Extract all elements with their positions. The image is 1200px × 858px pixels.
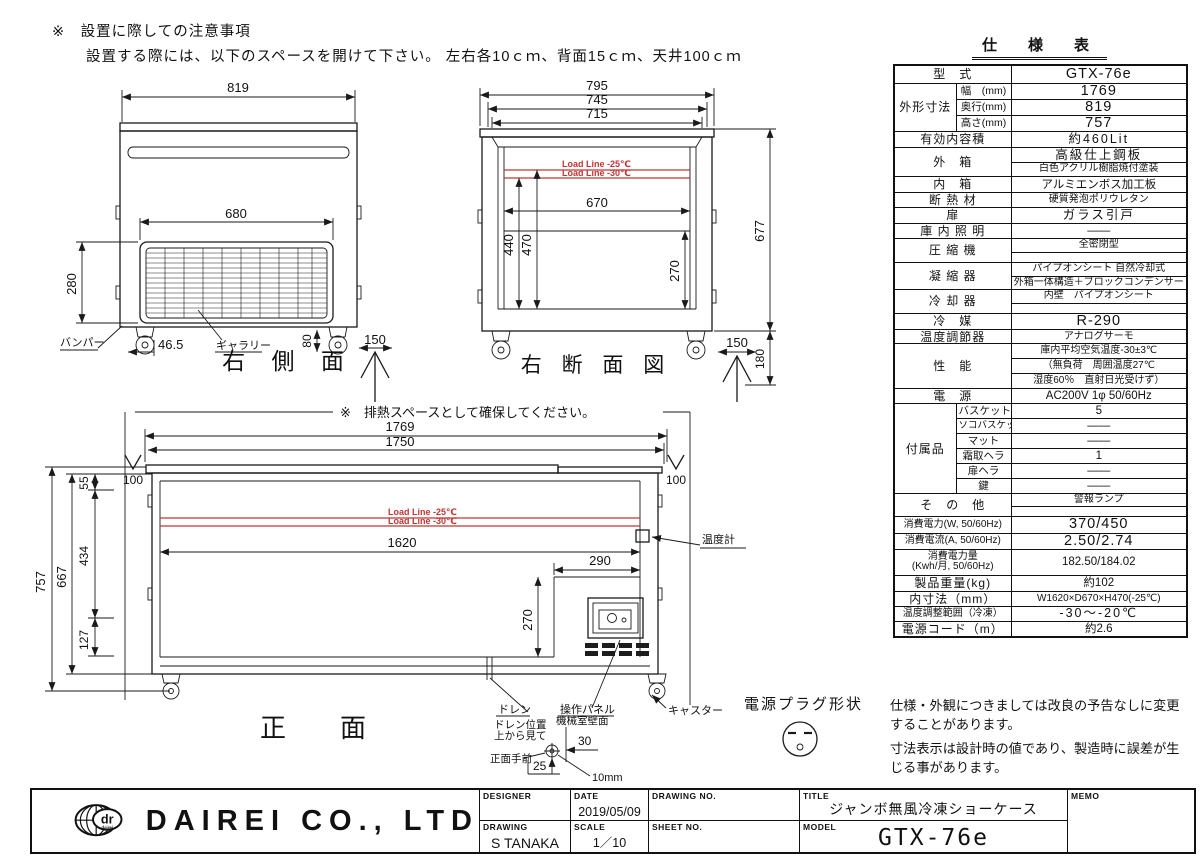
dim-side-80: 80 — [300, 334, 314, 348]
grille-hatch — [146, 248, 327, 318]
front-view-title: 正 面 — [260, 713, 380, 743]
spec-cell: 外形寸法 — [894, 83, 956, 132]
spec-cell: そ の 他 — [894, 494, 1011, 517]
spec-cell: W1620×D670×H470(-25℃) — [1011, 591, 1187, 606]
spec-cell: 内 箱 — [894, 177, 1011, 193]
install-note-title: ※ 設置に際しての注意事項 — [52, 20, 251, 41]
spec-cell: -30～-20℃ — [1011, 606, 1187, 621]
spec-cell: 幅 (mm) — [956, 83, 1011, 99]
spec-row: そ の 他警報ランプ — [894, 494, 1187, 507]
spec-row: 消費電力(W, 50/60Hz)370/450 — [894, 517, 1187, 533]
spec-cell: —— — [1011, 419, 1187, 434]
model-value: GTX-76e — [800, 825, 1067, 851]
dim-front-127: 127 — [77, 630, 91, 650]
label-caster: キャスター — [668, 704, 723, 717]
spec-row: 内 箱アルミエンボス加工板 — [894, 177, 1187, 193]
dim-sec-715: 715 — [586, 106, 608, 121]
spec-row: 冷 却 器内壁 パイプオンシート — [894, 290, 1187, 304]
spec-row: 冷 媒R-290 — [894, 314, 1187, 330]
drawing-no-label: DRAWING NO. — [652, 791, 716, 801]
drain-detail-10mm: 10mm — [592, 772, 623, 784]
dim-front-1769: 1769 — [386, 419, 415, 434]
spec-cell: 冷 却 器 — [894, 290, 1011, 314]
load-line-30-label: Load Line -30℃ — [562, 168, 631, 178]
spec-cell: 性 能 — [894, 344, 1011, 389]
spec-cell: 警報ランプ — [1011, 494, 1187, 507]
spec-cell: 高級仕上鋼板 — [1011, 148, 1187, 163]
title-block: dr dairei DAIREI CO., LTD DESIGNER DRAWI… — [30, 788, 1196, 854]
dim-front-100-right: 100 — [666, 473, 686, 487]
dim-sec-150: 150 — [726, 335, 748, 350]
spec-row: 圧 縮 機全密閉型 — [894, 239, 1187, 253]
spec-row: 庫 内 照 明—— — [894, 224, 1187, 239]
dim-sec-440: 440 — [501, 234, 516, 256]
drawing-sheet: 819 680 280 バンパー 46.5 ギャラリー 80 150 右 側 面 — [0, 0, 1200, 858]
dim-side-280: 280 — [64, 273, 79, 295]
spec-cell: 約102 — [1011, 575, 1187, 591]
dim-sec-670: 670 — [586, 195, 608, 210]
spec-cell: 電 源 — [894, 389, 1011, 404]
spec-cell: R-290 — [1011, 314, 1187, 330]
spec-row: 消費電流(A, 50/60Hz)2.50/2.74 — [894, 533, 1187, 549]
spec-cell: 消費電力(W, 50/60Hz) — [894, 517, 1011, 533]
spec-section: 仕 様 表 型 式GTX-76e外形寸法幅 (mm)1769奥行(mm)819高… — [893, 34, 1186, 638]
spec-row: 性 能庫内平均空気温度-30±3℃ — [894, 344, 1187, 359]
spec-cell: 冷 媒 — [894, 314, 1011, 330]
label-panel: 操作パネル — [560, 702, 615, 716]
spec-cell: 370/450 — [1011, 517, 1187, 533]
spec-cell: 1769 — [1011, 83, 1187, 99]
spec-cell: ガラス引戸 — [1011, 208, 1187, 224]
spec-row: 電源コード（m）約2.6 — [894, 621, 1187, 637]
dim-front-1620: 1620 — [388, 535, 417, 550]
spec-cell: 製品重量(kg) — [894, 575, 1011, 591]
disclaimer-2: 寸法表示は設計時の値であり、製造時に誤差が生じる事があります。 — [890, 740, 1192, 777]
spec-row: 有効内容積約460Lit — [894, 132, 1187, 148]
install-note-body: 設置する際には、以下のスペースを開けて下さい。 左右各10ｃｍ、背面15ｃｍ、天… — [86, 45, 742, 66]
date-cell: DATE 2019/05/09 SCALE 1／10 — [570, 790, 648, 852]
spec-cell: 霜取ヘラ — [956, 449, 1011, 464]
front-load-line-30: Load Line -30℃ — [388, 516, 457, 526]
spec-row: 外 箱高級仕上鋼板 — [894, 148, 1187, 163]
date-label: DATE — [574, 791, 599, 801]
spec-cell: —— — [1011, 479, 1187, 494]
dim-side-680: 680 — [225, 206, 247, 221]
company-name: DAIREI CO., LTD — [146, 805, 479, 838]
spec-cell: 凝 縮 器 — [894, 263, 1011, 290]
spec-cell: 扉 — [894, 208, 1011, 224]
designer-cell: DESIGNER DRAWING S TANAKA — [479, 790, 570, 852]
dim-front-290: 290 — [589, 553, 611, 568]
spec-cell: 温度調整範囲（冷凍） — [894, 606, 1011, 621]
side-view-title: 右 側 面 — [222, 348, 354, 374]
spec-cell: アナログサーモ — [1011, 330, 1187, 344]
spec-cell: 約460Lit — [1011, 132, 1187, 148]
sheet-no-label: SHEET NO. — [652, 822, 702, 832]
spec-cell: 奥行(mm) — [956, 99, 1011, 115]
spec-cell: 湿度60％ 直射日光受けず） — [1011, 374, 1187, 389]
spec-row: 電 源AC200V 1φ 50/60Hz — [894, 389, 1187, 404]
dairei-logo: dr dairei — [74, 795, 136, 847]
spec-row: 付属品バスケット5 — [894, 404, 1187, 419]
spec-table: 型 式GTX-76e外形寸法幅 (mm)1769奥行(mm)819高さ(mm)7… — [893, 64, 1188, 638]
spec-cell: 全密閉型 — [1011, 239, 1187, 253]
spec-row: 製品重量(kg)約102 — [894, 575, 1187, 591]
dim-front-434: 434 — [77, 546, 91, 566]
spec-row: 断 熱 材硬質発泡ポリウレタン — [894, 193, 1187, 208]
spec-row: 消費電力量(Kwh/月, 50/60Hz)182.50/184.02 — [894, 549, 1187, 575]
designer-label: DESIGNER — [483, 791, 531, 801]
spec-cell: （無負荷 周囲温度27℃ — [1011, 359, 1187, 374]
label-drain: ドレン — [498, 704, 531, 716]
dim-sec-795: 795 — [586, 78, 608, 93]
dim-front-270: 270 — [520, 609, 535, 631]
label-bumper: バンパー — [60, 336, 105, 349]
spec-cell: 内壁 パイプオンシート — [1011, 290, 1187, 304]
front-view-linework — [45, 429, 746, 716]
dim-front-55: 55 — [77, 476, 91, 490]
spec-cell: パイプオンシート 自然冷却式 — [1011, 263, 1187, 277]
label-thermometer: 温度計 — [702, 532, 735, 546]
spec-cell: —— — [1011, 434, 1187, 449]
spec-cell: 外箱一体構造＋ブロックコンデンサー — [1011, 277, 1187, 290]
dim-sec-270: 270 — [667, 260, 682, 282]
spec-cell — [1011, 253, 1187, 263]
spec-cell: 819 — [1011, 99, 1187, 115]
dim-sec-470: 470 — [519, 234, 534, 256]
spec-cell: 1 — [1011, 449, 1187, 464]
spec-cell: 2.50/2.74 — [1011, 533, 1187, 549]
spec-cell: 型 式 — [894, 65, 1011, 83]
spec-row: 型 式GTX-76e — [894, 65, 1187, 83]
logo-sub-text: dairei — [101, 825, 113, 830]
drain-detail-wall: 機械室壁面 — [556, 714, 609, 727]
drain-detail-line2: 上から見て — [494, 730, 547, 742]
drawing-label: DRAWING — [483, 822, 528, 832]
spec-cell: 内寸法（mm） — [894, 591, 1011, 606]
disclaimer-notes: 仕様・外観につきましては改良の予告なしに変更することがあります。 寸法表示は設計… — [890, 697, 1192, 784]
spec-cell: マット — [956, 434, 1011, 449]
vent-grille — [585, 643, 649, 656]
dim-side-150: 150 — [364, 332, 386, 347]
plug-symbol — [783, 722, 817, 756]
drain-detail-front: 正面手前 — [490, 752, 532, 765]
drain-detail-30: 30 — [578, 734, 592, 748]
spec-cell: 庫内平均空気温度-30±3℃ — [1011, 344, 1187, 359]
spec-cell: 庫 内 照 明 — [894, 224, 1011, 239]
spec-cell: 有効内容積 — [894, 132, 1011, 148]
drawing-no-cell: DRAWING NO. SHEET NO. — [648, 790, 799, 852]
dim-sec-180: 180 — [753, 349, 767, 369]
scale-value: 1／10 — [571, 832, 648, 851]
spec-cell: 182.50/184.02 — [1011, 549, 1187, 575]
spec-cell: 消費電流(A, 50/60Hz) — [894, 533, 1011, 549]
plug-label: 電源プラグ形状 — [744, 696, 863, 713]
caster-bracket — [136, 327, 154, 337]
dim-sec-677: 677 — [752, 220, 767, 242]
spec-cell — [1011, 304, 1187, 314]
spec-row: 温度調整範囲（冷凍）-30～-20℃ — [894, 606, 1187, 621]
section-view-title: 右 断 面 図 — [521, 354, 672, 377]
company-cell: dr dairei DAIREI CO., LTD — [32, 790, 479, 852]
spec-row: 外形寸法幅 (mm)1769 — [894, 83, 1187, 99]
spec-cell: ソコバスケット — [956, 419, 1011, 434]
spec-title: 仕 様 表 — [893, 34, 1186, 60]
spec-cell: バスケット — [956, 404, 1011, 419]
memo-label: MEMO — [1071, 791, 1099, 801]
spec-cell: 約2.6 — [1011, 621, 1187, 637]
dim-side-819: 819 — [227, 80, 249, 95]
spec-cell: —— — [1011, 224, 1187, 239]
dim-front-667: 667 — [54, 566, 69, 588]
spec-cell: —— — [1011, 464, 1187, 479]
spec-cell: 電源コード（m） — [894, 621, 1011, 637]
spec-cell: 圧 縮 機 — [894, 239, 1011, 263]
title-cell: TITLE ジャンボ無風冷凍ショーケース MODEL GTX-76e — [799, 790, 1067, 852]
dim-front-1750: 1750 — [386, 434, 415, 449]
spec-cell: 硬質発泡ポリウレタン — [1011, 193, 1187, 208]
spec-row: 凝 縮 器パイプオンシート 自然冷却式 — [894, 263, 1187, 277]
spec-row: 温度調節器アナログサーモ — [894, 330, 1187, 344]
spec-row: 扉ガラス引戸 — [894, 208, 1187, 224]
spec-cell — [1011, 507, 1187, 517]
dim-side-46-5: 46.5 — [158, 337, 183, 352]
spec-row: 内寸法（mm）W1620×D670×H470(-25℃) — [894, 591, 1187, 606]
spec-cell: AC200V 1φ 50/60Hz — [1011, 389, 1187, 404]
spec-cell: アルミエンボス加工板 — [1011, 177, 1187, 193]
spec-cell: 白色アクリル樹脂焼付塗装 — [1011, 163, 1187, 177]
spec-cell: 消費電力量(Kwh/月, 50/60Hz) — [894, 549, 1011, 575]
heat-space-note: ※ 排熱スペースとして確保してください。 — [340, 405, 595, 420]
spec-cell: 鍵 — [956, 479, 1011, 494]
disclaimer-1: 仕様・外観につきましては改良の予告なしに変更することがあります。 — [890, 697, 1192, 734]
spec-cell: 温度調節器 — [894, 330, 1011, 344]
spec-cell: 断 熱 材 — [894, 193, 1011, 208]
dim-front-757: 757 — [33, 571, 48, 593]
spec-cell: 5 — [1011, 404, 1187, 419]
dim-front-100-left: 100 — [123, 473, 143, 487]
memo-cell: MEMO — [1067, 790, 1194, 852]
scale-label: SCALE — [574, 822, 605, 832]
spec-cell: 付属品 — [894, 404, 956, 494]
title-value: ジャンボ無風冷凍ショーケース — [800, 799, 1067, 819]
drain-detail-25: 25 — [533, 759, 547, 773]
drawer-value: S TANAKA — [480, 835, 570, 851]
spec-cell: 757 — [1011, 115, 1187, 131]
spec-cell: GTX-76e — [1011, 65, 1187, 83]
date-value: 2019/05/09 — [571, 805, 648, 819]
spec-cell: 外 箱 — [894, 148, 1011, 177]
spec-cell: 高さ(mm) — [956, 115, 1011, 131]
spec-cell: 扉ヘラ — [956, 464, 1011, 479]
dim-sec-745: 745 — [586, 92, 608, 107]
